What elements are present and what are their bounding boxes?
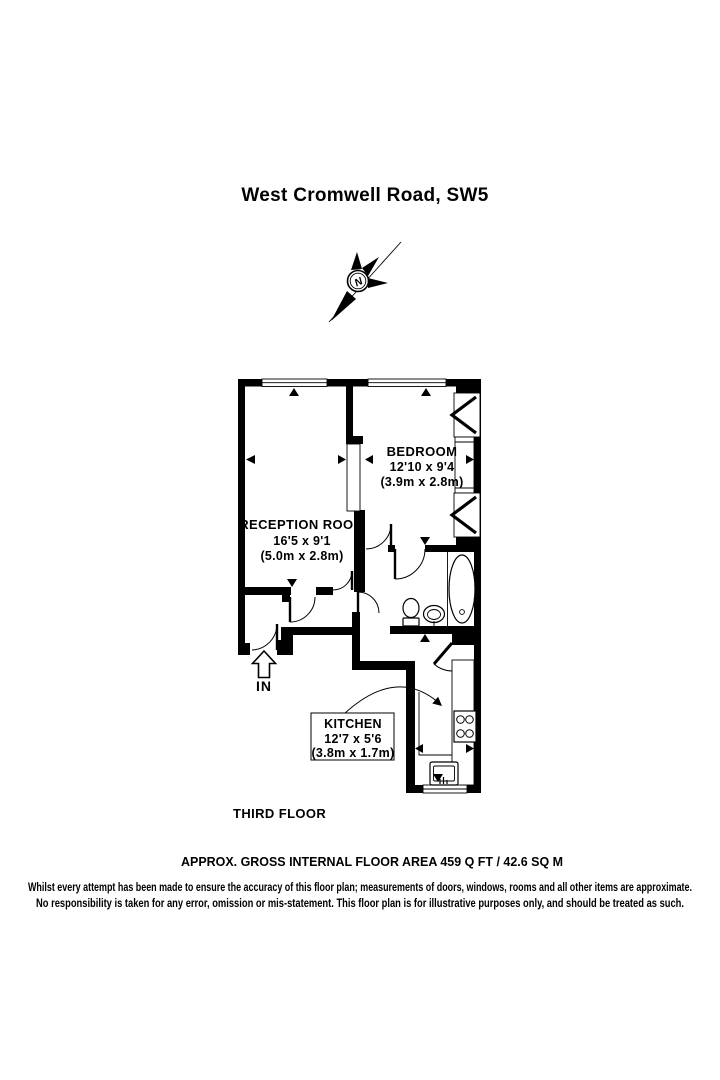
bathroom-fixtures	[403, 552, 475, 626]
wall-bathroom-right-stub	[452, 626, 481, 645]
window-icon	[423, 785, 467, 793]
inner-hall-door-arc	[358, 592, 379, 613]
dimension-arrow	[289, 388, 299, 396]
kitchen-pointer-line	[344, 687, 439, 714]
wall-entrance-stub	[277, 640, 293, 655]
reception-room-dims-metric: (5.0m x 2.8m)	[260, 549, 343, 563]
floorplan-page: West Cromwell Road, SW5 N	[0, 0, 720, 1080]
bathtub-icon	[449, 555, 475, 623]
window-icon	[262, 379, 327, 387]
wall-reception-bottom-right	[316, 587, 333, 595]
kitchen-dims-metric: (3.8m x 1.7m)	[311, 746, 394, 760]
bedroom-door-arc	[366, 524, 391, 549]
bathroom-door-arc	[395, 549, 425, 579]
dimension-arrow	[365, 455, 373, 464]
dimension-arrow	[421, 388, 431, 396]
kitchen-pointer-arrowhead	[432, 697, 442, 706]
kitchen-dims-imperial: 12'7 x 5'6	[324, 732, 382, 746]
hob-icon	[454, 711, 476, 742]
kitchen-sink-icon	[430, 762, 458, 785]
reception-door-arc	[290, 597, 315, 622]
wall-bathroom-top	[425, 545, 481, 552]
wall-divider-step	[346, 436, 363, 444]
wall-kitchen-top	[352, 661, 415, 670]
reception-room-dims-imperial: 16'5 x 9'1	[273, 534, 331, 548]
kitchen-label: KITCHEN	[324, 717, 382, 731]
reception-inner-door-arc	[333, 571, 352, 590]
toilet-icon	[403, 599, 419, 627]
bedroom-label: BEDROOM	[387, 444, 458, 459]
bedroom-dims-metric: (3.9m x 2.8m)	[380, 475, 463, 489]
entrance-label: IN	[256, 678, 272, 694]
window-icon	[368, 379, 446, 387]
wardrobe-icon	[452, 493, 480, 537]
wall-divider-upper	[346, 386, 353, 437]
dimension-arrow	[246, 455, 255, 464]
kitchen-fixtures	[419, 660, 476, 785]
floor-label: THIRD FLOOR	[233, 806, 326, 821]
wall-vestibule-corner	[281, 627, 293, 641]
dimension-arrow	[338, 455, 346, 464]
disclaimer-line-1: Whilst every attempt has been made to en…	[28, 882, 692, 894]
dimension-arrow	[420, 537, 430, 545]
wall-entrance-left	[238, 643, 250, 655]
basin-icon	[424, 606, 445, 627]
wall-left	[238, 379, 245, 652]
wardrobe-icon	[452, 393, 480, 437]
entrance: IN	[253, 651, 276, 694]
disclaimer-line-2: No responsibility is taken for any error…	[36, 898, 684, 910]
kitchen-door-arc	[434, 643, 452, 671]
floor-plan-svg: West Cromwell Road, SW5 N	[0, 0, 720, 1080]
reception-room-label: RECEPTION ROOM	[239, 517, 365, 532]
wall-hallway-bottom	[289, 627, 360, 635]
compass-icon: N	[329, 242, 401, 322]
dimension-arrow	[420, 634, 430, 642]
area-summary: APPROX. GROSS INTERNAL FLOOR AREA 459 Q …	[181, 855, 563, 869]
wall-reception-bottom-left	[238, 587, 291, 595]
alcove-recess	[347, 444, 360, 511]
page-title: West Cromwell Road, SW5	[241, 185, 488, 206]
bedroom-dims-imperial: 12'10 x 9'4	[390, 460, 455, 474]
entrance-arrow-icon	[253, 651, 276, 678]
dimension-arrow	[287, 579, 297, 587]
entrance-door-arc	[252, 624, 277, 650]
